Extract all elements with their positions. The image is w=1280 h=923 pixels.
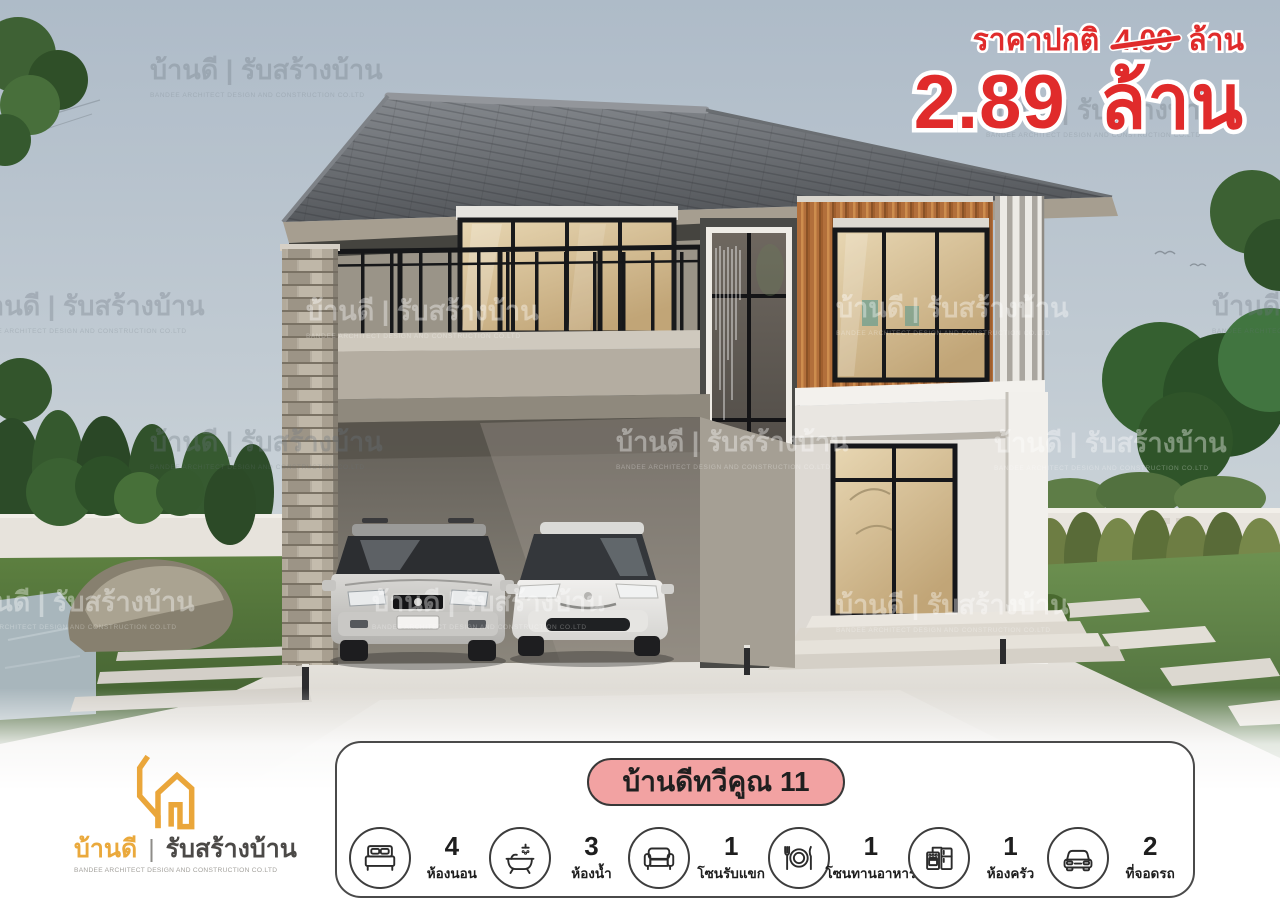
sale-price-unit: ล้าน <box>1100 63 1244 143</box>
feature-label: ห้องนอน <box>427 862 477 884</box>
feature-count: 4 <box>445 833 459 859</box>
regular-price-unit: ล้าน <box>1188 24 1244 59</box>
ad-poster: บ้านดี | รับสร้างบ้าน BANDEE ARCHITECT D… <box>0 0 1280 923</box>
feature-kitchen: 1 ห้องครัว <box>908 827 1044 889</box>
features-row: 4 ห้องนอน 3 <box>349 827 1183 889</box>
regular-price-label: ราคาปกติ <box>973 24 1100 59</box>
feature-dining-zone: 1 โซนทานอาหาร <box>768 827 904 889</box>
model-name-badge: บ้านดีทวีคูณ 11 <box>587 758 845 806</box>
feature-count: 3 <box>584 833 598 859</box>
feature-circle <box>768 827 830 889</box>
dining-icon <box>780 839 818 877</box>
feature-circle <box>489 827 551 889</box>
feature-parking: 2 ที่จอดรถ <box>1047 827 1183 889</box>
company-logo: บ้านดี | รับสร้างบ้าน BANDEE ARCHITECT D… <box>74 752 242 874</box>
kitchen-icon <box>920 839 958 877</box>
sofa-icon <box>640 839 678 877</box>
regular-price-line: ราคาปกติ 4.09 ล้าน <box>902 24 1244 59</box>
feature-bathrooms: 3 ห้องน้ำ <box>489 827 625 889</box>
logo-text: บ้านดี | รับสร้างบ้าน <box>74 836 242 864</box>
logo-tagline: รับสร้างบ้าน <box>166 835 297 863</box>
logo-brand: บ้านดี <box>74 835 137 863</box>
price-block: ราคาปกติ 4.09 ล้าน 2.89 ล้าน <box>902 24 1244 142</box>
feature-living-zone: 1 โซนรับแขก <box>628 827 764 889</box>
logo-divider: | <box>148 835 155 863</box>
sale-price-line: 2.89 ล้าน <box>902 63 1244 143</box>
bathtub-icon <box>501 839 539 877</box>
feature-label: โซนทานอาหาร <box>825 862 916 884</box>
wood-accent-wall <box>797 196 993 388</box>
logo-subtitle: BANDEE ARCHITECT DESIGN AND CONSTRUCTION… <box>74 867 242 874</box>
bed-icon <box>361 839 399 877</box>
feature-count: 1 <box>724 833 738 859</box>
feature-label: ห้องครัว <box>987 862 1034 884</box>
feature-circle <box>908 827 970 889</box>
feature-circle <box>349 827 411 889</box>
feature-count: 1 <box>1003 833 1017 859</box>
bandee-house-logo-icon <box>114 752 202 834</box>
feature-circle <box>1047 827 1109 889</box>
vertical-fins <box>995 196 1043 392</box>
feature-label: ที่จอดรถ <box>1126 862 1175 884</box>
feature-bedrooms: 4 ห้องนอน <box>349 827 485 889</box>
regular-price-value: 4.09 <box>1115 24 1173 59</box>
balcony-railing <box>296 247 704 334</box>
sale-price-value: 2.89 <box>914 63 1066 143</box>
feature-count: 1 <box>864 833 878 859</box>
car-icon <box>1059 839 1097 877</box>
feature-label: ห้องน้ำ <box>571 862 611 884</box>
feature-count: 2 <box>1143 833 1157 859</box>
feature-label: โซนรับแขก <box>697 862 765 884</box>
feature-circle <box>628 827 690 889</box>
property-info-card: บ้านดีทวีคูณ 11 4 ห้องนอน <box>335 741 1195 898</box>
